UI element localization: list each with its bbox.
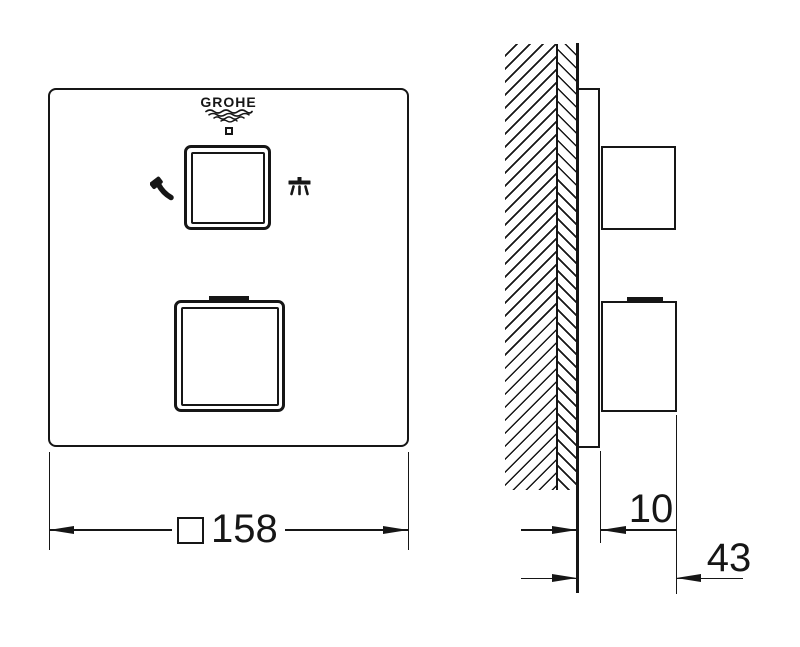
wall-layer-line bbox=[556, 44, 557, 490]
thermostat-handle-front bbox=[174, 300, 285, 412]
head-shower-icon bbox=[288, 177, 311, 198]
ext-line-front-left bbox=[49, 452, 50, 550]
hand-shower-icon bbox=[150, 176, 178, 204]
faceplate-side-profile bbox=[579, 88, 600, 448]
thermostat-handle-side-profile bbox=[601, 301, 677, 412]
thermostat-handle-inner-edge bbox=[181, 307, 279, 406]
ext-line-front-right bbox=[408, 452, 409, 550]
diverter-handle-inner-edge bbox=[191, 152, 265, 224]
dim-value-trim-depth: 10 bbox=[629, 489, 674, 529]
ext-line-handle-front bbox=[676, 415, 677, 594]
logo-square-mark bbox=[225, 127, 233, 135]
front-faceplate: GROHE bbox=[48, 88, 409, 447]
diverter-handle-front bbox=[184, 145, 271, 230]
grohe-waves-icon bbox=[204, 109, 254, 123]
wall-hatch-main bbox=[505, 44, 557, 490]
diverter-handle-side-profile bbox=[601, 146, 676, 230]
dim-arrow-158-right bbox=[383, 526, 408, 534]
dim-arrow-10-left bbox=[552, 526, 577, 534]
wall-hatch-plaster bbox=[557, 44, 577, 490]
square-dimension-symbol bbox=[177, 517, 204, 544]
grohe-logo-text: GROHE bbox=[200, 95, 256, 109]
technical-drawing-canvas: GROHE bbox=[0, 0, 800, 647]
dim-arrow-158-left bbox=[49, 526, 74, 534]
dim-arrow-43-left bbox=[552, 574, 577, 582]
dim-value-handle-depth: 43 bbox=[707, 538, 752, 578]
dim-value-width: 158 bbox=[211, 509, 278, 549]
grohe-logo: GROHE bbox=[50, 95, 407, 135]
